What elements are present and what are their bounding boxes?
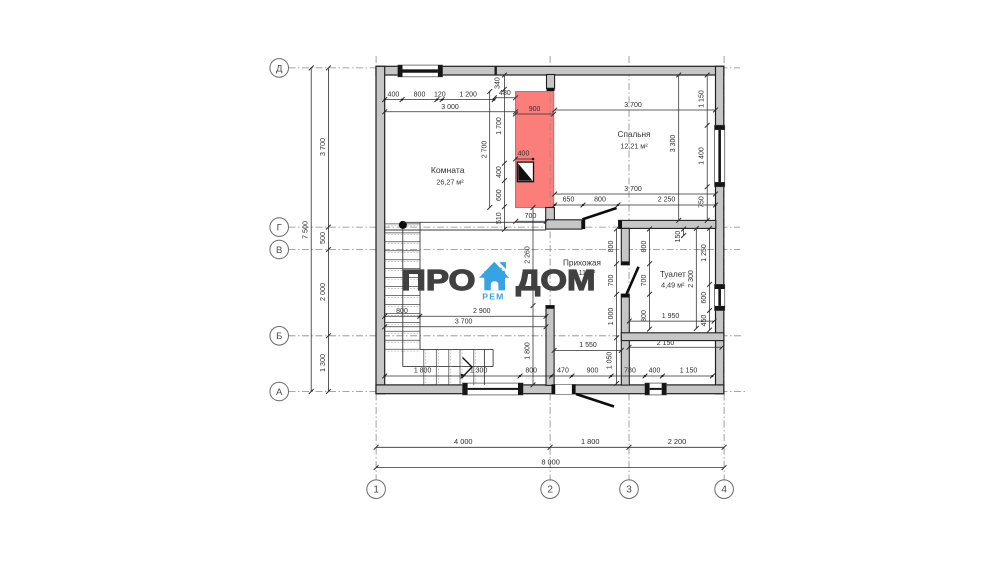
svg-text:1 000: 1 000	[608, 308, 615, 326]
svg-text:500: 500	[318, 232, 327, 244]
svg-text:400: 400	[649, 368, 661, 375]
svg-text:2: 2	[547, 485, 553, 496]
svg-text:1 050: 1 050	[607, 352, 614, 370]
svg-text:900: 900	[587, 368, 599, 375]
svg-text:1 250: 1 250	[701, 244, 708, 262]
svg-text:3 700: 3 700	[318, 138, 327, 156]
svg-text:3 000: 3 000	[441, 104, 459, 111]
svg-text:4,49 м²: 4,49 м²	[661, 281, 685, 290]
svg-text:12,21 м²: 12,21 м²	[620, 142, 648, 151]
svg-text:2 260: 2 260	[525, 246, 532, 264]
svg-text:1 550: 1 550	[579, 342, 597, 349]
svg-text:2 900: 2 900	[473, 308, 491, 315]
svg-text:480: 480	[499, 90, 511, 97]
svg-text:340: 340	[494, 77, 501, 89]
svg-text:900: 900	[529, 106, 541, 113]
svg-text:Туалет: Туалет	[660, 270, 686, 279]
svg-text:150: 150	[675, 231, 682, 243]
svg-text:РЕМ: РЕМ	[482, 292, 504, 302]
svg-text:Г: Г	[277, 223, 282, 234]
svg-text:Б: Б	[276, 331, 282, 342]
svg-text:ПРО: ПРО	[401, 264, 476, 296]
svg-text:400: 400	[496, 166, 503, 178]
svg-text:2 000: 2 000	[318, 283, 327, 301]
svg-text:600: 600	[496, 189, 503, 201]
svg-text:3 700: 3 700	[624, 186, 642, 193]
svg-text:1 200: 1 200	[459, 91, 477, 98]
svg-text:2 200: 2 200	[668, 437, 687, 446]
svg-text:4: 4	[721, 485, 727, 496]
svg-text:120: 120	[434, 91, 446, 98]
svg-text:26,27 м²: 26,27 м²	[436, 178, 464, 187]
svg-text:3 700: 3 700	[624, 102, 642, 109]
svg-text:Спальня: Спальня	[618, 130, 651, 139]
svg-text:3 700: 3 700	[455, 319, 473, 326]
svg-text:600: 600	[701, 292, 708, 304]
svg-text:510: 510	[496, 212, 503, 224]
svg-text:700: 700	[608, 275, 615, 287]
svg-text:800: 800	[608, 241, 615, 253]
svg-text:А: А	[276, 387, 283, 398]
svg-text:7 500: 7 500	[301, 221, 310, 239]
svg-text:1 300: 1 300	[470, 368, 488, 375]
svg-text:1 300: 1 300	[318, 354, 327, 372]
svg-text:ДОМ: ДОМ	[516, 264, 596, 296]
svg-text:1 150: 1 150	[680, 368, 698, 375]
svg-text:400: 400	[518, 151, 530, 158]
svg-text:1 800: 1 800	[525, 342, 532, 360]
svg-text:3: 3	[626, 485, 632, 496]
svg-text:470: 470	[557, 368, 569, 375]
svg-text:780: 780	[624, 368, 636, 375]
svg-text:Комната: Комната	[431, 165, 465, 175]
svg-text:800: 800	[396, 308, 408, 315]
svg-text:650: 650	[563, 197, 575, 204]
svg-text:1 800: 1 800	[581, 437, 600, 446]
svg-text:3 300: 3 300	[670, 135, 677, 153]
svg-text:8 000: 8 000	[541, 457, 560, 466]
svg-text:800: 800	[641, 241, 648, 253]
svg-text:800: 800	[641, 310, 648, 322]
svg-text:1 150: 1 150	[699, 90, 706, 108]
svg-text:1 400: 1 400	[699, 147, 706, 165]
svg-text:1 700: 1 700	[496, 117, 503, 135]
svg-text:450: 450	[701, 315, 708, 327]
svg-text:2 700: 2 700	[481, 141, 488, 159]
svg-text:400: 400	[388, 91, 400, 98]
svg-text:800: 800	[414, 91, 426, 98]
svg-text:2 300: 2 300	[688, 270, 695, 288]
svg-text:2 150: 2 150	[657, 340, 675, 347]
svg-text:Д: Д	[276, 63, 283, 74]
svg-text:800: 800	[525, 368, 537, 375]
svg-text:700: 700	[525, 213, 537, 220]
svg-text:В: В	[276, 245, 282, 256]
svg-text:750: 750	[699, 196, 706, 208]
svg-text:1 800: 1 800	[414, 368, 432, 375]
svg-text:4 000: 4 000	[454, 437, 473, 446]
svg-text:1: 1	[373, 485, 379, 496]
svg-text:1 950: 1 950	[662, 313, 680, 320]
svg-text:800: 800	[594, 197, 606, 204]
svg-text:2 250: 2 250	[658, 197, 676, 204]
svg-text:700: 700	[641, 275, 648, 287]
